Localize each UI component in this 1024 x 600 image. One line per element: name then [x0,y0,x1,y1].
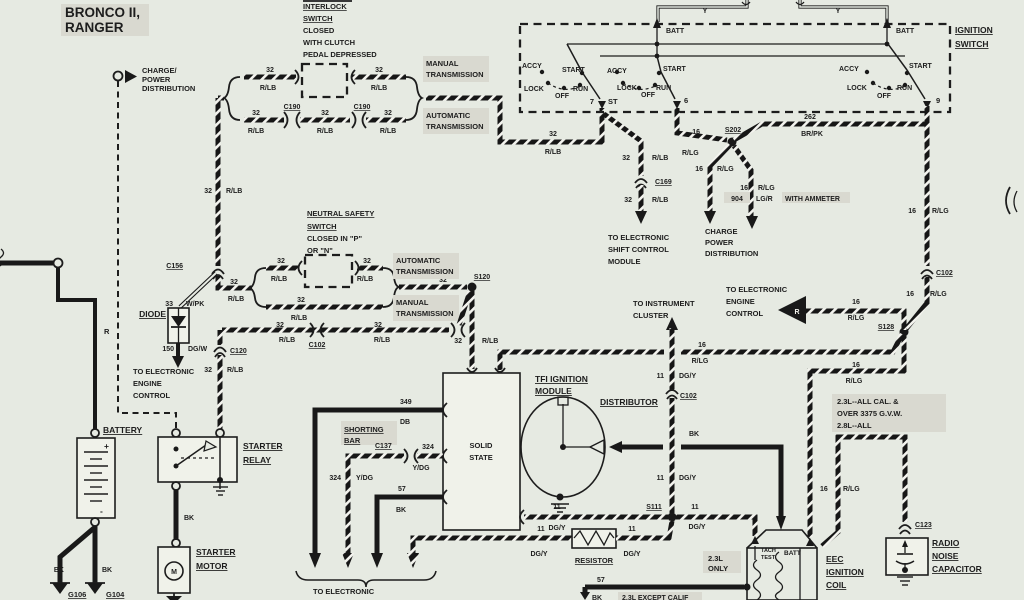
splice-label-s111: S111 [646,504,662,511]
interlock-l3: CLOSED [303,26,335,35]
eca-dest-l1: TO ELECTRONIC [313,587,375,596]
motor-m-label: M [171,569,177,576]
title-line1: BRONCO II, [65,5,140,20]
wire-color-label: DG/Y [548,525,565,532]
charge-dist-l2: POWER [705,238,734,247]
wire-gauge-label: 324 [329,475,341,482]
wire-gauge-label: 16 [852,299,860,306]
lock-label: LOCK [617,85,637,92]
shift-dest-l1: TO ELECTRONIC [608,233,670,242]
wire-gauge-label: 16 [692,129,700,136]
wire-gauge-label: 16 [695,166,703,173]
wire-gauge-label: 32 [384,110,392,117]
run-label: RUN [573,86,588,93]
wire-gauge-label: 16 [908,208,916,215]
run-label: RUN [897,85,912,92]
transmission-label: TRANSMISSION [426,122,484,131]
note-cal-l2: OVER 3375 G.V.W. [837,409,902,418]
wire-color-label: R/LB [380,128,396,135]
lock-label: LOCK [524,86,544,93]
wire-color-label: R/LB [248,128,264,135]
connector-label-c190: C190 [284,104,301,111]
connector-label-c102: C102 [309,342,326,349]
shorting-bar-l1: SHORTING [344,425,384,434]
diode-dest-l2: ENGINE [133,379,162,388]
coil-batt-label: BATT [784,550,801,557]
wire-gauge-label: 32 [266,67,274,74]
wire-gauge-label: 32 [252,110,260,117]
coil-label-l1: EEC [826,554,843,564]
wire-gauge-label: 32 [230,279,238,286]
wire-gauge-label: 32 [321,110,329,117]
wire-color-label-y: Y [836,8,841,15]
wire-color-label: DG/Y [688,524,705,531]
transmission-label: TRANSMISSION [426,70,484,79]
wire-color-label: R/LB [371,85,387,92]
wire-color-label: BK [689,431,699,438]
wire-color-label: R/LG [717,166,734,173]
wire-gauge-label: 32 [375,67,383,74]
manual-transmission-label: MANUAL [396,298,429,307]
shorting-bar-l2: BAR [344,436,361,445]
run-label: RUN [656,85,671,92]
ignition-switch-title1: IGNITION [955,25,993,35]
connector-label-c137: C137 [375,443,392,450]
neutral-safety-l1: NEUTRAL SAFETY [307,209,374,218]
interlock-l2: SWITCH [303,14,333,23]
batt-label: BATT [896,28,915,35]
interlock-l5: PEDAL DEPRESSED [303,50,377,59]
wire-gauge-label: 11 [657,373,665,380]
terminal-6-label: 6 [684,96,688,105]
automatic-transmission-label: AUTOMATIC [426,111,471,120]
connector-label-c120: C120 [230,348,247,355]
wire-gauge-label: 16 [740,185,748,192]
solid-label: SOLID [470,441,494,450]
automatic-transmission-label: AUTOMATIC [396,256,441,265]
starter-motor-l2: MOTOR [196,561,227,571]
wire-gauge-label: 16 [698,342,706,349]
wire-gauge-label: 32 [276,322,284,329]
wire-gauge-label: 11 [691,504,699,511]
wire-gauge-label: 16 [852,362,860,369]
start-label: START [663,66,687,73]
note-23l-only-l2: ONLY [708,564,728,573]
charge-dist-l1: CHARGE [705,227,738,236]
charge-power-l3: DISTRIBUTION [142,84,195,93]
eec-triangle-letter: R [794,309,799,316]
accy-label: ACCY [839,66,859,73]
start-label: START [909,63,933,70]
wire-color-label: R/LB [226,188,242,195]
battery-label: BATTERY [103,425,143,435]
wire-color-label: BK [396,507,406,514]
shift-dest-l2: SHIFT CONTROL [608,245,669,254]
wire-gauge-label: 32 [204,367,212,374]
title-line2: RANGER [65,20,124,35]
terminal-7-label: 7 [590,97,594,106]
connector-label-c169: C169 [655,179,672,186]
wire-color-label: BR/PK [801,131,823,138]
battery-minus: - [100,506,103,516]
off-label: OFF [641,92,656,99]
wire-color-label: R/LB [545,149,561,156]
wire-color-label: R/LG [932,208,949,215]
wire-gauge-label: 324 [422,444,434,451]
tfi-module-box [443,373,520,530]
start-label: START [562,67,586,74]
wire-color-label: R/LG [930,291,947,298]
wire-gauge-label: 32 [297,297,305,304]
lock-label: LOCK [847,85,867,92]
wire-color-label-r: R [104,327,110,336]
splice-s120-dot [468,283,477,292]
wire-gauge-label: 11 [628,526,636,533]
batt-label: BATT [666,28,685,35]
connector-label-c123: C123 [915,522,932,529]
wire-color-label-y: Y [703,8,708,15]
instrument-dest-l2: CLUSTER [633,311,669,320]
wire-color-label: R/LG [692,358,709,365]
wire-gauge-label: 32 [374,322,382,329]
distributor-label: DISTRIBUTOR [600,397,658,407]
wire-color-label: DG/Y [679,373,696,380]
ground-label-g104: G104 [106,590,125,599]
charge-power-l2: POWER [142,75,171,84]
wire-color-label: R/LG [758,185,775,192]
eec-dest-l2: ENGINE [726,297,755,306]
accy-label: ACCY [607,68,627,75]
splice-s111-dot [668,513,677,522]
neutral-safety-l3: CLOSED IN "P" [307,234,362,243]
wire-color-label: R/LB [652,155,668,162]
wire-color-label: BK [102,567,112,574]
test-label: TEST [761,555,776,561]
wire-gauge-label: 11 [537,526,545,533]
wire-color-label: R/LB [482,338,498,345]
wire-gauge-label: 32 [549,131,557,138]
wire-gauge-label: 32 [204,188,212,195]
wire-color-label: R/LG [848,315,865,322]
note-except-calif: 2.3L EXCEPT CALIF [622,595,689,600]
ignition-switch-title2: SWITCH [955,39,989,49]
wire-color-label: R/LB [260,85,276,92]
neutral-safety-l4: OR "N" [307,246,333,255]
battery-box [77,438,115,518]
diode-dest-l1: TO ELECTRONIC [133,367,195,376]
wire-color-label: R/LG [846,378,863,385]
wire-color-label: R/LB [271,276,287,283]
wire-color-label: BK [592,595,602,600]
wire-color-label: R/LB [228,296,244,303]
coil-label-l3: COIL [826,580,846,590]
wire-color-label: DB [400,419,410,426]
note-cal-l3: 2.8L--ALL [837,421,872,430]
wire-color-label: DG/Y [679,475,696,482]
diagram-title: BRONCO II, RANGER [61,4,149,36]
capacitor-label-l2: NOISE [932,551,959,561]
wire-gauge-label: 349 [400,399,412,406]
wire-gauge-label: 57 [597,577,605,584]
wire-gauge-label: 904 [731,196,743,203]
note-23l-only-l1: 2.3L [708,554,723,563]
wire-color-label: R/LB [317,128,333,135]
capacitor-label-l3: CAPACITOR [932,564,982,574]
eec-dest-l1: TO ELECTRONIC [726,285,788,294]
ground-label-g106: G106 [68,590,86,599]
battery-plus: + [104,441,109,451]
wire-gauge-label: 33 [165,301,173,308]
terminal-st-label: ST [608,97,618,106]
charge-power-l1: CHARGE/ [142,66,178,75]
splice-label-s120: S120 [474,274,490,281]
wire-gauge-label: 16 [820,486,828,493]
starter-relay-box [158,437,237,482]
starter-relay-l2: RELAY [243,455,271,465]
splice-label-s128: S128 [878,324,894,331]
wire-gauge-label: 57 [398,486,406,493]
wire-gauge-label: 32 [622,155,630,162]
wire-color-label: R/LG [843,486,860,493]
wire-color-label: Y/DG [356,475,374,482]
diode-label: DIODE [139,309,166,319]
wire-color-label: R/LG [682,150,699,157]
coil-label-l2: IGNITION [826,567,864,577]
charge-dist-l3: DISTRIBUTION [705,249,758,258]
wire-color-label: BK [184,515,194,522]
splice-label-s202: S202 [725,127,741,134]
capacitor-label-l1: RADIO [932,538,960,548]
with-ammeter-note: WITH AMMETER [785,196,840,203]
wire-color-label: Y/DG [412,465,430,472]
wire-color-label: DG/W [188,346,207,353]
wire-gauge-label: 32 [624,197,632,204]
wire-color-label: DG/Y [530,551,547,558]
wiring-diagram: BRONCO II, RANGER CHARGE/ POWER DISTRIBU… [0,0,1024,600]
terminal-9-label: 9 [936,96,940,105]
wire-color-label: BK [54,567,64,574]
interlock-l4: WITH CLUTCH [303,38,355,47]
connector-label-c102: C102 [936,270,953,277]
tfi-title-l1: TFI IGNITION [535,374,588,384]
shift-dest-l3: MODULE [608,257,641,266]
wire-gauge-label: 11 [657,475,665,482]
wire-gauge-label: 32 [454,338,462,345]
wire-color-label: R/LB [374,337,390,344]
starter-relay-l1: STARTER [243,441,283,451]
off-label: OFF [555,93,570,100]
instrument-dest-l1: TO INSTRUMENT [633,299,695,308]
manual-transmission-label: MANUAL [426,59,459,68]
connector-label-c156: C156 [166,263,183,270]
tfi-title-l2: MODULE [535,386,572,396]
wire-color-label: R/LB [291,315,307,322]
wire-color-label: R/LB [357,276,373,283]
off-label: OFF [877,93,892,100]
wire-color-label: LG/R [756,196,773,203]
connector-label-c190: C190 [354,104,371,111]
wire-color-label: DG/Y [623,551,640,558]
wire-color-label: R/LB [652,197,668,204]
starter-motor-l1: STARTER [196,547,236,557]
wire-color-label: W/PK [186,301,204,308]
wire-gauge-label: 16 [906,291,914,298]
connector-label-c102: C102 [680,393,697,400]
interlock-l1: INTERLOCK [303,2,347,11]
wire-gauge-label: 150 [162,346,174,353]
accy-label: ACCY [522,63,542,70]
diode-dest-l3: CONTROL [133,391,170,400]
wire-gauge-label: 32 [277,258,285,265]
wire-color-label: R/LB [279,337,295,344]
neutral-safety-l2: SWITCH [307,222,337,231]
state-label: STATE [469,453,492,462]
wire-gauge-label: 32 [363,258,371,265]
wire-gauge-label: 262 [804,114,816,121]
resistor-label: RESISTOR [575,556,614,565]
note-cal-l1: 2.3L--ALL CAL. & [837,397,899,406]
wire-color-label: R/LB [227,367,243,374]
transmission-label: TRANSMISSION [396,309,454,318]
wire-gauge-label: 11 [553,504,561,511]
tach-label: TACH [761,548,776,554]
transmission-label: TRANSMISSION [396,267,454,276]
eec-dest-l3: CONTROL [726,309,763,318]
